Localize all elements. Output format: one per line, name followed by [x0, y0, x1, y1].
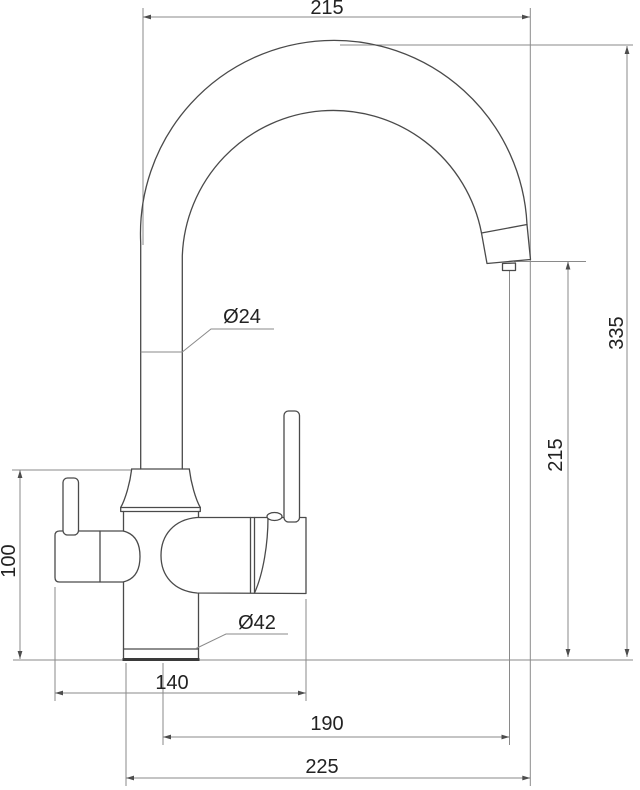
flare-right-edge	[189, 469, 200, 508]
spout-inner-curve	[182, 110, 481, 469]
extension-lines	[12, 8, 633, 786]
left-valve-body	[55, 531, 140, 582]
left-handle-lever	[63, 478, 79, 535]
label-body-diameter: Ø42	[238, 612, 276, 634]
spout-outer-curve	[140, 40, 527, 469]
faucet-outline	[55, 40, 531, 660]
arrow-down-icon	[566, 649, 571, 657]
arrow-up-icon	[18, 470, 23, 478]
right-handle-lever	[284, 411, 300, 522]
spout-end-piece	[482, 225, 531, 264]
leader-spout-diameter	[141, 329, 274, 352]
right-valve-body	[161, 518, 306, 594]
dimension-labels: 215 Ø24 335 215 100 Ø42 140 190 225	[0, 0, 628, 778]
arrow-right-icon	[522, 776, 530, 781]
faucet-technical-drawing: 215 Ø24 335 215 100 Ø42 140 190 225	[0, 0, 640, 790]
label-overall-height: 335	[606, 316, 628, 349]
arrow-down-icon	[625, 649, 630, 657]
aerator-nozzle	[503, 263, 516, 271]
label-left-body-height: 100	[0, 544, 20, 577]
label-outlet-height: 215	[545, 438, 567, 471]
arrow-right-icon	[522, 15, 530, 20]
arrow-left-icon	[126, 776, 134, 781]
label-width-body-span: 140	[155, 672, 188, 694]
arrow-up-icon	[625, 46, 630, 54]
arrow-left-icon	[143, 15, 151, 20]
label-width-overall: 225	[305, 756, 338, 778]
arrow-down-icon	[18, 651, 23, 659]
label-top-width: 215	[310, 0, 343, 19]
leader-body-diameter	[196, 634, 288, 649]
arrow-left-icon	[55, 691, 63, 696]
arrow-right-icon	[298, 691, 306, 696]
arrow-right-icon	[502, 735, 510, 740]
flare-left-edge	[121, 469, 132, 508]
flare-rim	[121, 508, 201, 512]
arrow-left-icon	[163, 735, 171, 740]
technical-drawing-page: 215 Ø24 335 215 100 Ø42 140 190 225	[0, 0, 640, 790]
label-width-spout-reach: 190	[310, 713, 343, 735]
arrow-up-icon	[566, 262, 571, 270]
label-spout-tube-diameter: Ø24	[223, 306, 261, 328]
dimension-lines	[18, 15, 630, 781]
right-handle-joint	[267, 513, 282, 521]
